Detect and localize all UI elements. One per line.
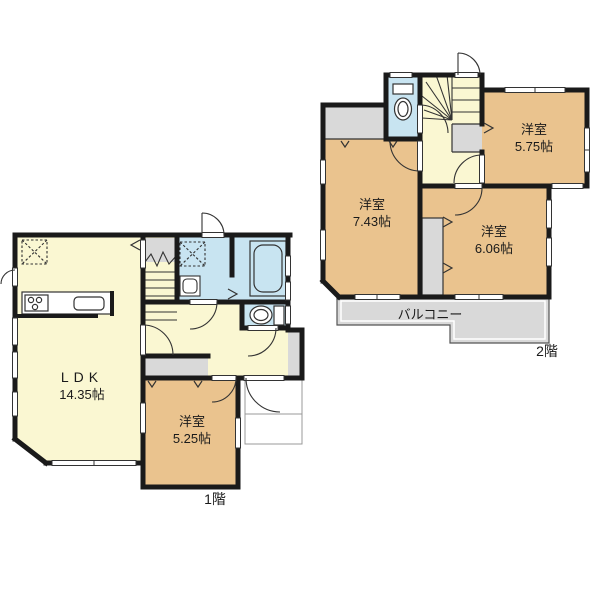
- floor-plan-drawing: [0, 0, 600, 599]
- toilet-icon: [250, 306, 284, 325]
- kitchen-counter: [22, 292, 113, 314]
- room-label-bedroom-743: 洋室 7.43帖: [325, 196, 419, 230]
- room-name: 洋室: [486, 121, 582, 138]
- room-size: 6.06帖: [446, 240, 542, 257]
- entrance-porch: [245, 380, 302, 444]
- room-size: 5.25帖: [147, 430, 237, 447]
- room-name: 洋室: [325, 196, 419, 213]
- balcony-label: バルコニー: [378, 306, 482, 323]
- room-size: 7.43帖: [325, 213, 419, 230]
- floor2-label: 2階: [522, 343, 572, 360]
- room-label-ldk: LDK 14.35帖: [22, 369, 142, 403]
- room-size: 5.75帖: [486, 138, 582, 155]
- toilet-icon: [393, 84, 413, 120]
- room-label-bedroom-606: 洋室 6.06帖: [446, 223, 542, 257]
- floor1-room-fills: [15, 235, 302, 487]
- room-label-bedroom-575: 洋室 5.75帖: [486, 121, 582, 155]
- room-name: LDK: [22, 369, 142, 386]
- room-name: 洋室: [446, 223, 542, 240]
- room-name: 洋室: [147, 413, 237, 430]
- room-size: 14.35帖: [22, 386, 142, 403]
- vanity-sink-icon: [180, 276, 200, 296]
- floor-plan-canvas: LDK 14.35帖 洋室 5.25帖 1階 洋室 7.43帖 洋室 6.06帖…: [0, 0, 600, 599]
- closet: [422, 218, 443, 295]
- room-label-bedroom-1f: 洋室 5.25帖: [147, 413, 237, 447]
- floor1-label: 1階: [190, 491, 240, 508]
